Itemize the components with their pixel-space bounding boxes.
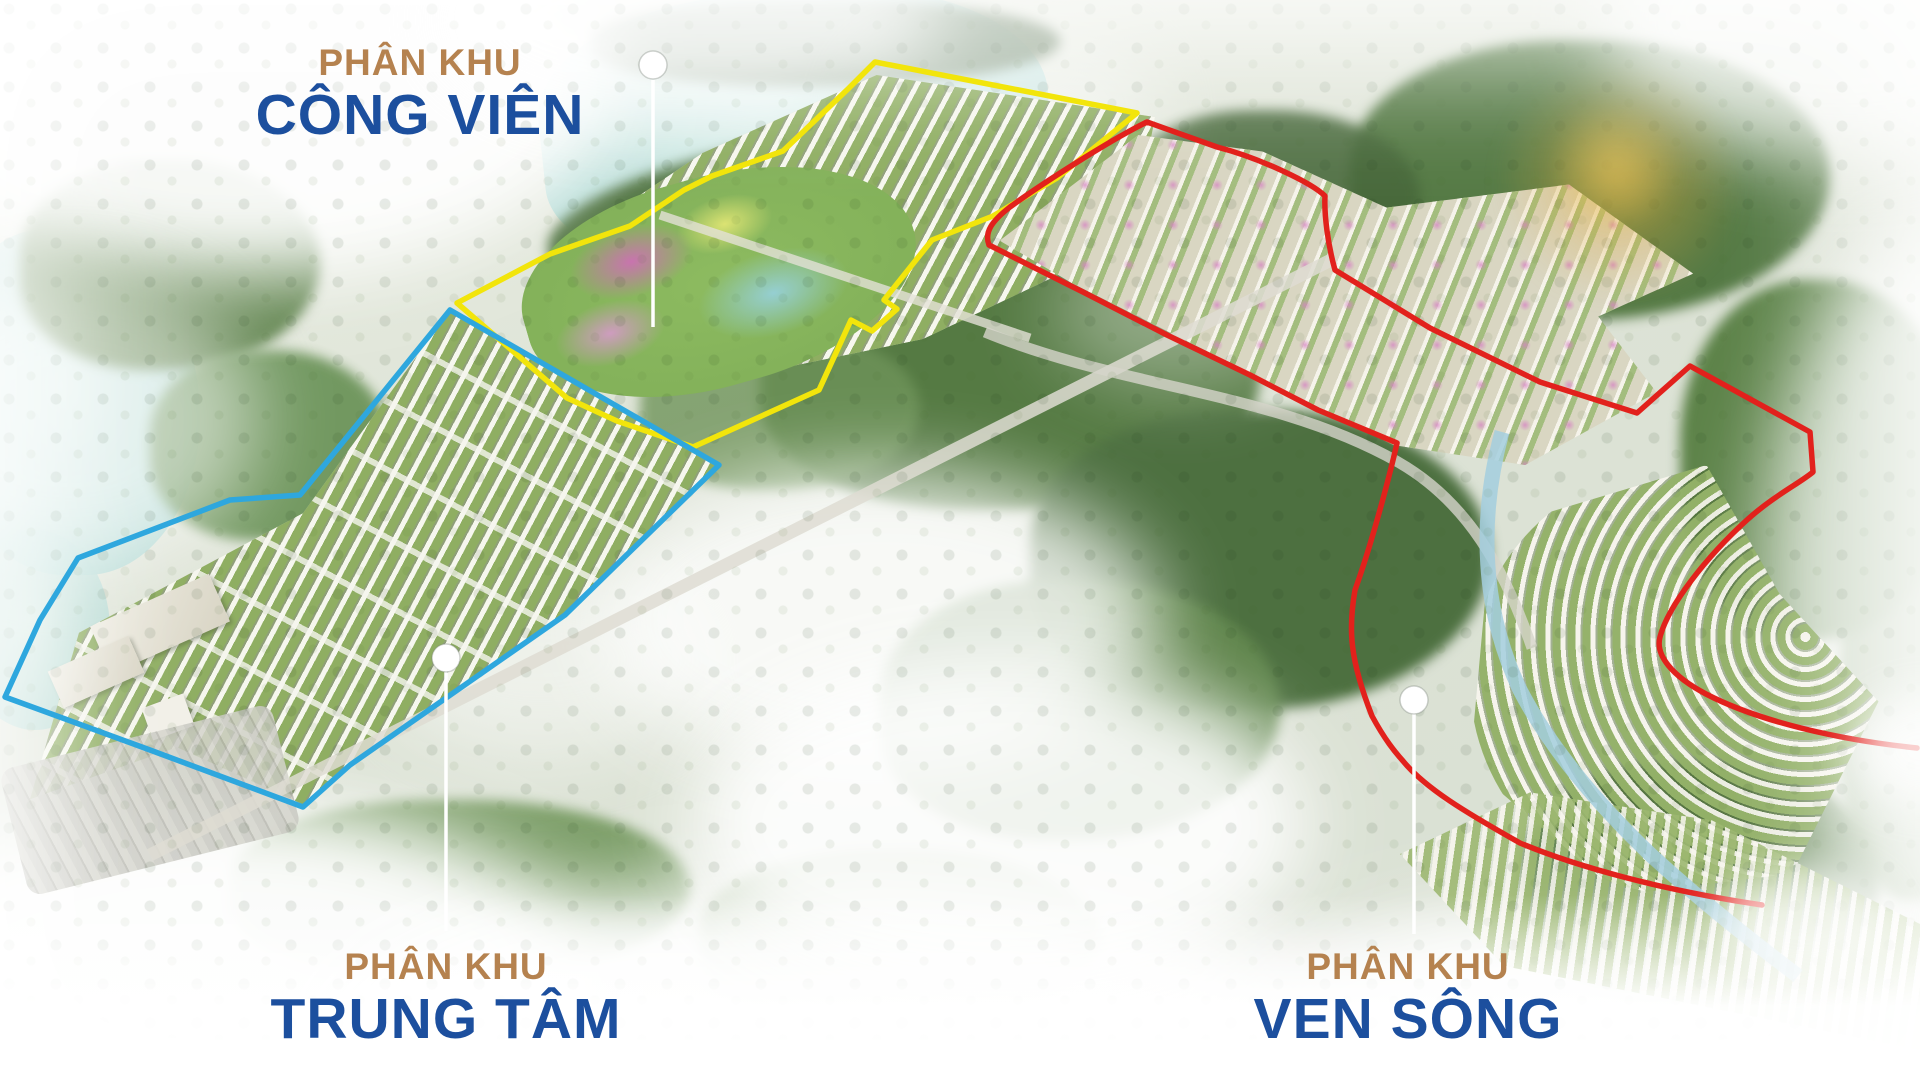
zone-name-cong-vien: CÔNG VIÊN: [256, 86, 585, 146]
haze-over-red-end: [1715, 865, 1895, 985]
leader-dot-cong-vien: [639, 51, 667, 79]
zone-sublabel-ven-song: PHÂN KHU: [1254, 948, 1563, 987]
leader-dot-ven-song: [1400, 686, 1428, 714]
zone-name-ven-song: VEN SÔNG: [1254, 990, 1563, 1050]
zone-label-cong-vien: PHÂN KHU CÔNG VIÊN: [256, 44, 585, 146]
zone-label-trung-tam: PHÂN KHU TRUNG TÂM: [271, 948, 622, 1050]
zone-sublabel-cong-vien: PHÂN KHU: [256, 44, 585, 83]
aerial-master-plan: PHÂN KHU CÔNG VIÊN PHÂN KHU TRUNG TÂM PH…: [0, 0, 1920, 1080]
zone-outline-trung-tam: [5, 310, 719, 807]
zone-label-ven-song: PHÂN KHU VEN SÔNG: [1254, 948, 1563, 1050]
leader-dot-trung-tam: [432, 644, 460, 672]
zone-name-trung-tam: TRUNG TÂM: [271, 990, 622, 1050]
zone-outline-ven-song: [988, 122, 1917, 905]
zone-sublabel-trung-tam: PHÂN KHU: [271, 948, 622, 987]
annotation-layer: [0, 0, 1920, 1080]
